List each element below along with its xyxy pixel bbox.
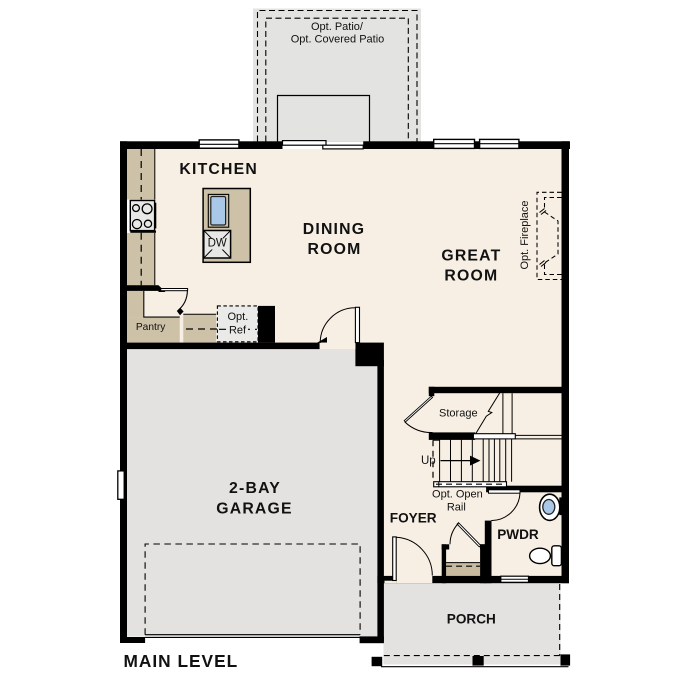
svg-text:2-BAY: 2-BAY: [229, 480, 281, 497]
svg-text:KITCHEN: KITCHEN: [179, 161, 258, 178]
svg-text:GARAGE: GARAGE: [216, 501, 293, 518]
svg-text:Opt. Fireplace: Opt. Fireplace: [519, 200, 531, 269]
svg-text:MAIN LEVEL: MAIN LEVEL: [124, 651, 239, 671]
svg-text:Pantry: Pantry: [136, 322, 166, 333]
svg-text:GREAT: GREAT: [441, 247, 501, 264]
svg-text:DINING: DINING: [303, 221, 366, 238]
svg-text:Ref: Ref: [229, 325, 247, 337]
svg-text:PWDR: PWDR: [497, 527, 539, 542]
svg-text:DW: DW: [208, 237, 227, 249]
svg-text:ROOM: ROOM: [308, 241, 362, 258]
svg-text:Storage: Storage: [439, 408, 478, 420]
svg-text:Up: Up: [421, 455, 436, 467]
svg-text:Opt.: Opt.: [228, 311, 249, 323]
svg-text:Opt. Open: Opt. Open: [432, 488, 483, 500]
svg-text:Opt. Covered Patio: Opt. Covered Patio: [291, 33, 385, 45]
svg-text:Opt. Patio/: Opt. Patio/: [311, 21, 364, 33]
svg-text:PORCH: PORCH: [447, 612, 496, 627]
svg-text:ROOM: ROOM: [444, 267, 498, 284]
svg-text:FOYER: FOYER: [390, 511, 437, 526]
svg-text:Rail: Rail: [447, 502, 466, 514]
